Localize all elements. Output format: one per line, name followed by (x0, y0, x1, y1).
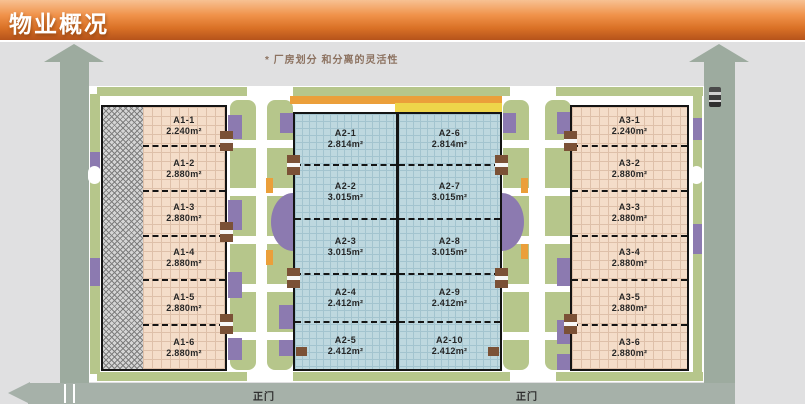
unit-area: 2.880m² (612, 303, 648, 314)
unit-area: 2.880m² (166, 348, 202, 359)
loading-dock (287, 155, 300, 175)
main-gate-label-right: 正门 (516, 388, 538, 403)
building-a1-units: A1-12.240m²A1-22.880m²A1-32.880m²A1-42.8… (143, 107, 225, 369)
unit-id: A2-9 (439, 287, 461, 298)
unit-id: A2-7 (439, 181, 461, 192)
building-a1: A1-12.240m²A1-22.880m²A1-32.880m²A1-42.8… (101, 105, 227, 371)
purple-planter (503, 113, 516, 133)
purple-planter (557, 354, 571, 370)
unit-area: 2.814m² (432, 139, 468, 150)
road-gap (510, 87, 556, 96)
unit-area: 2.880m² (166, 258, 202, 269)
building-a2-east-units: A2-62.814m²A2-73.015m²A2-83.015m²A2-92.4… (399, 114, 500, 369)
yellow-canopy-strip (395, 103, 502, 112)
unit-id: A2-3 (335, 236, 357, 247)
unit-id: A1-2 (173, 158, 195, 169)
unit-id: A3-1 (619, 115, 641, 126)
unit-id: A2-10 (436, 335, 463, 346)
unit-area: 2.412m² (328, 346, 364, 357)
unit-A2-6: A2-62.814m² (399, 114, 500, 164)
unit-area: 2.240m² (612, 126, 648, 137)
unit-A1-1: A1-12.240m² (143, 107, 225, 145)
unit-id: A1-4 (173, 247, 195, 258)
unit-id: A2-8 (439, 236, 461, 247)
page-title-bar: 物业概况 (0, 0, 805, 42)
orange-marker (521, 178, 528, 193)
up-arrow-icon (689, 44, 749, 62)
loading-dock (296, 347, 307, 356)
building-a3-units: A3-12.240m²A3-22.880m²A3-32.880m²A3-42.8… (572, 107, 687, 369)
purple-planter (557, 258, 571, 286)
unit-id: A2-6 (439, 128, 461, 139)
unit-id: A3-4 (619, 247, 641, 258)
unit-A3-3: A3-32.880m² (572, 190, 687, 235)
unit-area: 3.015m² (432, 192, 468, 203)
up-arrow-icon (44, 44, 104, 62)
hatched-service-area (103, 107, 143, 369)
unit-A2-2: A2-23.015m² (295, 164, 396, 218)
unit-area: 3.015m² (328, 192, 364, 203)
unit-A2-9: A2-92.412m² (399, 273, 500, 321)
purple-planter (279, 340, 293, 356)
road-gap (247, 87, 293, 96)
unit-A3-6: A3-62.880m² (572, 324, 687, 369)
unit-A3-2: A3-22.880m² (572, 145, 687, 190)
loading-dock (220, 131, 233, 151)
landscape-strip-top (97, 87, 703, 96)
unit-id: A1-3 (173, 202, 195, 213)
unit-A2-1: A2-12.814m² (295, 114, 396, 164)
unit-id: A2-4 (335, 287, 357, 298)
unit-A1-4: A1-42.880m² (143, 235, 225, 280)
building-a2-west-units: A2-12.814m²A2-23.015m²A2-33.015m²A2-42.4… (295, 114, 396, 369)
unit-A1-2: A1-22.880m² (143, 145, 225, 190)
purple-planter (693, 224, 702, 254)
building-a3: A3-12.240m²A3-22.880m²A3-32.880m²A3-42.8… (570, 105, 689, 371)
unit-id: A2-1 (335, 128, 357, 139)
east-road (704, 62, 735, 404)
entry-notch (88, 166, 101, 184)
page-title: 物业概况 (9, 5, 109, 39)
unit-A1-3: A1-32.880m² (143, 190, 225, 235)
unit-id: A1-5 (173, 292, 195, 303)
unit-A1-6: A1-62.880m² (143, 324, 225, 369)
unit-A2-3: A2-33.015m² (295, 218, 396, 272)
orange-marker (266, 250, 273, 265)
unit-area: 3.015m² (432, 247, 468, 258)
unit-A2-4: A2-42.412m² (295, 273, 396, 321)
gate-road-gap (247, 372, 293, 381)
purple-planter (228, 338, 242, 360)
loading-dock (564, 131, 577, 151)
unit-id: A3-3 (619, 202, 641, 213)
unit-area: 2.240m² (166, 126, 202, 137)
unit-A2-8: A2-83.015m² (399, 218, 500, 272)
gatehouse-icon (709, 87, 721, 107)
unit-A1-5: A1-52.880m² (143, 279, 225, 324)
loading-dock (220, 314, 233, 334)
unit-area: 2.880m² (612, 169, 648, 180)
purple-planter (280, 113, 293, 133)
main-gate-label-left: 正门 (253, 388, 275, 403)
unit-A3-5: A3-52.880m² (572, 279, 687, 324)
building-a2: A2-12.814m²A2-23.015m²A2-33.015m²A2-42.4… (293, 112, 502, 371)
unit-area: 2.880m² (166, 213, 202, 224)
unit-id: A1-6 (173, 337, 195, 348)
landscape-strip-bottom (97, 372, 703, 381)
parking-landscape-column (230, 100, 256, 370)
unit-area: 2.880m² (612, 213, 648, 224)
road-tick (73, 384, 75, 403)
loading-dock (495, 155, 508, 175)
unit-A3-4: A3-42.880m² (572, 235, 687, 280)
loading-dock (564, 314, 577, 334)
unit-A2-7: A2-73.015m² (399, 164, 500, 218)
orange-marker (266, 178, 273, 193)
unit-id: A1-1 (173, 115, 195, 126)
unit-id: A2-2 (335, 181, 357, 192)
unit-area: 2.880m² (612, 348, 648, 359)
entry-notch (690, 166, 703, 184)
unit-id: A3-5 (619, 292, 641, 303)
loading-dock (495, 268, 508, 288)
south-road (28, 383, 735, 404)
unit-A3-1: A3-12.240m² (572, 107, 687, 145)
unit-area: 2.412m² (432, 298, 468, 309)
loading-dock (488, 347, 499, 356)
unit-area: 2.880m² (612, 258, 648, 269)
unit-area: 2.412m² (432, 346, 468, 357)
landscape-strip-west (90, 94, 100, 374)
purple-planter (693, 118, 702, 140)
unit-id: A2-5 (335, 335, 357, 346)
loading-dock (220, 222, 233, 242)
gate-road-gap (510, 372, 556, 381)
west-road (60, 62, 89, 383)
road-tick (64, 384, 66, 403)
purple-planter (279, 305, 293, 329)
unit-area: 2.412m² (328, 298, 364, 309)
plan-annotation: * 厂房划分 和分离的灵活性 (265, 51, 398, 66)
unit-A2-5: A2-52.412m² (295, 321, 396, 369)
unit-area: 3.015m² (328, 247, 364, 258)
purple-planter (90, 258, 100, 286)
unit-area: 2.880m² (166, 169, 202, 180)
orange-marker (521, 244, 528, 259)
loading-dock (287, 268, 300, 288)
unit-area: 2.814m² (328, 139, 364, 150)
unit-id: A3-6 (619, 337, 641, 348)
unit-A2-10: A2-102.412m² (399, 321, 500, 369)
unit-area: 2.880m² (166, 303, 202, 314)
left-arrow-icon (8, 382, 30, 404)
purple-planter (228, 272, 242, 298)
unit-id: A3-2 (619, 158, 641, 169)
slide: 物业概况 * 厂房划分 和分离的灵活性 (0, 0, 805, 404)
